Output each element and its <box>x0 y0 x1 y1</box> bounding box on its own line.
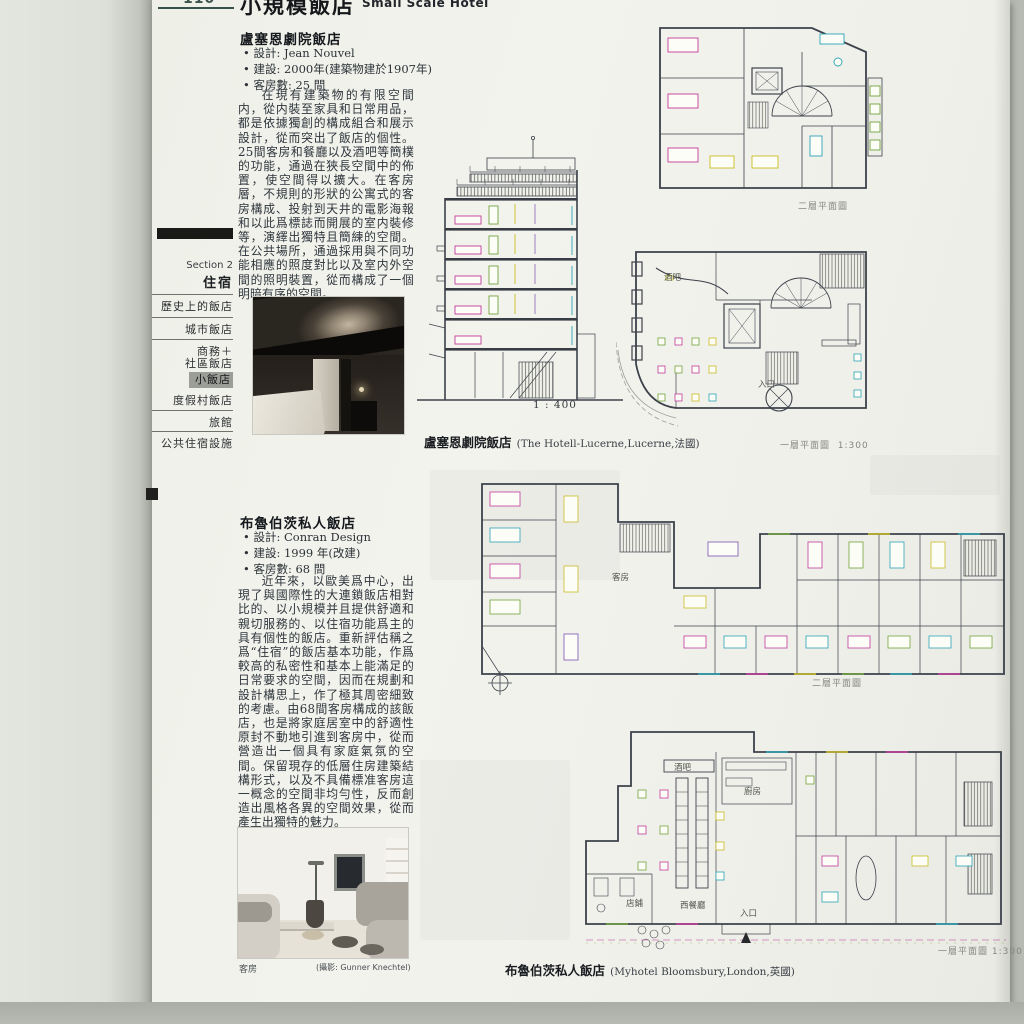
sidebar-divider <box>152 317 233 318</box>
sidebar-section-title: 住宿 <box>158 272 233 291</box>
plan-label-kitchen: 廚房 <box>744 786 761 797</box>
sidebar-item-city-hotels[interactable]: 城市飯店 <box>150 321 233 337</box>
scanned-book-page: 110 小規模飯店 Small Scale Hotel Section 2 住宿… <box>0 0 1024 1024</box>
article1-spec-designer: • 設計: Jean Nouvel <box>243 45 355 61</box>
sidebar-divider <box>152 339 233 340</box>
lucerne-plan2-label: 二層平面圖 <box>798 199 848 212</box>
lamp-glow <box>359 387 364 392</box>
sidebar-section-marker <box>157 228 233 239</box>
plan-label-shop: 店鋪 <box>626 898 644 909</box>
door-shadow <box>341 359 351 431</box>
article1-caption-cn: 盧塞恩劇院飯店 <box>424 435 512 450</box>
photo2-caption-left: 客房 <box>239 962 257 975</box>
article2-caption: 布魯伯茨私人飯店 (Myhotel Bloomsbury,London,英國) <box>505 960 795 979</box>
plan-label-bar: 酒吧 <box>674 763 692 773</box>
photo2-caption-credit: (攝影: Gunner Knechtel) <box>316 962 411 973</box>
sidebar-item-business-hotels-line2[interactable]: 社區飯店 <box>150 355 233 371</box>
dark-vase <box>306 900 324 928</box>
sidebar-item-small-hotels[interactable]: 小飯店 <box>150 371 233 387</box>
nightstand <box>351 401 377 431</box>
lucerne-plan1-label: 一層平面圖 1:300 <box>780 438 869 451</box>
page-title: 小規模飯店 <box>240 0 355 20</box>
myhotel-ground-floor-plan: 酒吧 廚房 店鋪 西餐廳 入口 <box>576 726 1014 952</box>
section-scale-label: 1 : 400 <box>533 399 577 411</box>
scan-bottom-edge <box>0 1002 1024 1024</box>
page-number: 110 <box>183 0 243 7</box>
article2-body: 近年來，以歐美爲中心，出現了與國際性的大連鎖飯店相對比的、以小規模并且提供舒適和… <box>238 574 414 830</box>
lucerne-upper-floor-plan <box>652 16 888 202</box>
myhotel-plan2-label: 二層平面圖 <box>812 676 862 689</box>
sidebar-item-resort-hotels[interactable]: 度假村飯店 <box>150 392 233 408</box>
sofa-cushion <box>238 902 272 922</box>
article1-caption-en: (The Hotell-Lucerne,Lucerne,法國) <box>517 438 700 450</box>
sidebar-divider <box>152 410 233 411</box>
page-number-rule <box>158 7 234 9</box>
plan-label-bar: 酒吧 <box>664 273 682 283</box>
article2-photo-guestroom <box>238 828 408 958</box>
sidebar-divider <box>152 431 233 432</box>
bed <box>253 389 325 434</box>
sidebar-active-highlight: 小飯店 <box>189 372 233 388</box>
article2-spec-designer: • 設計: Conran Design <box>243 529 371 545</box>
lucerne-ground-floor-plan: 酒吧 入口 <box>616 246 884 438</box>
sidebar-item-public-lodging[interactable]: 公共住宿設施 <box>150 435 233 451</box>
book-gutter <box>0 0 152 1002</box>
plan-label-entrance: 入口 <box>758 380 775 390</box>
article1-photo-guestroom <box>253 297 404 434</box>
plan-label-restaurant: 西餐廳 <box>680 900 706 911</box>
floor-lamp-head <box>308 861 324 865</box>
sidebar-item-inns[interactable]: 旅館 <box>150 414 233 430</box>
sidebar-edge-tab <box>146 488 158 500</box>
building-section-drawing <box>415 128 625 413</box>
ink-bleed-through <box>420 760 570 940</box>
page-title-english: Small Scale Hotel <box>362 0 489 10</box>
coffee-table <box>274 922 334 929</box>
sidebar-section-number: Section 2 <box>158 260 233 271</box>
rug-spot <box>360 944 384 955</box>
rug-spot <box>302 930 324 940</box>
myhotel-upper-floor-plan: 客房 <box>468 476 1012 696</box>
article1-body: 在現有建築物的有限空間内，從内裝至家具和日常用品，都是依據獨創的構成組合和展示設… <box>238 88 414 301</box>
plan-label-guestroom: 客房 <box>612 572 629 583</box>
plan-label-entrance: 入口 <box>740 909 757 919</box>
article2-spec-built: • 建設: 1999 年(改建) <box>243 545 360 561</box>
sidebar-divider <box>152 294 233 295</box>
myhotel-plan1-label: 一層平面圖 1:300 <box>938 944 1024 957</box>
article2-caption-en: (Myhotel Bloomsbury,London,英國) <box>610 966 795 978</box>
article2-caption-cn: 布魯伯茨私人飯店 <box>505 963 605 978</box>
sidebar-item-historic-hotels[interactable]: 歷史上的飯店 <box>150 298 233 314</box>
rug-spot <box>332 936 358 948</box>
article1-spec-built: • 建設: 2000年(建築物建於1907年) <box>243 61 432 77</box>
